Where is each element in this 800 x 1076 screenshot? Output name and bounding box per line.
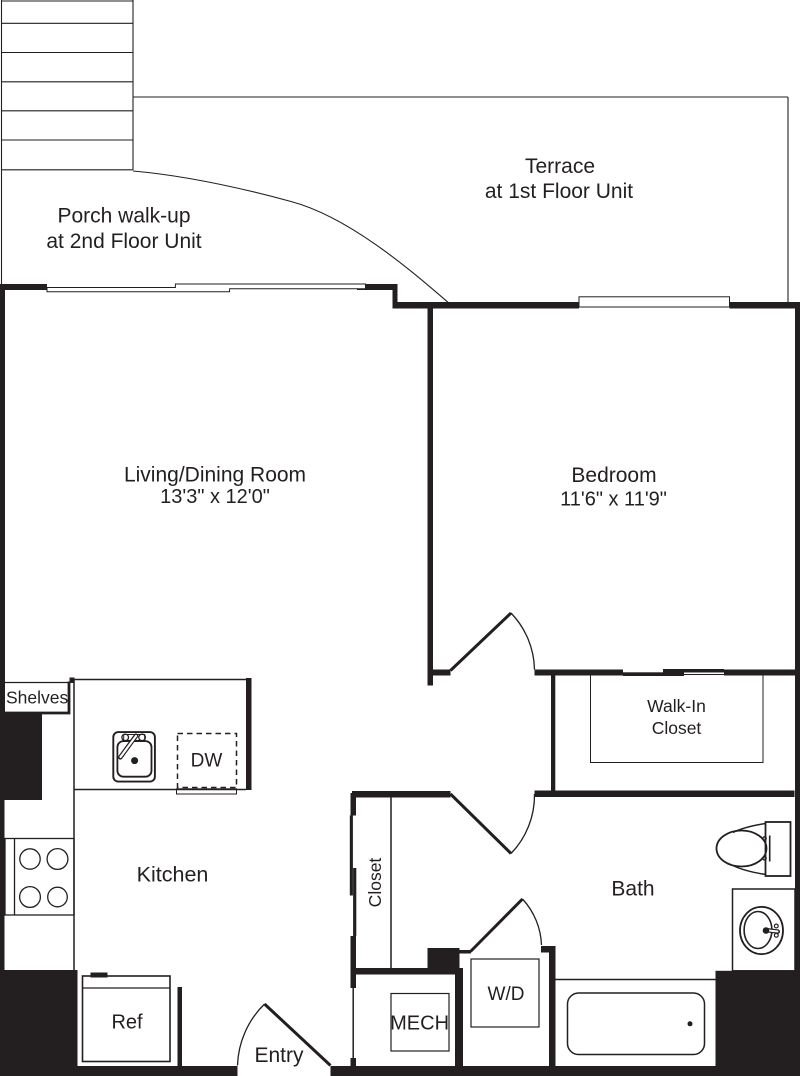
- svg-text:Shelves: Shelves: [6, 688, 69, 708]
- svg-text:Closet: Closet: [365, 858, 385, 908]
- svg-text:13'3" x 12'0": 13'3" x 12'0": [160, 486, 270, 508]
- svg-text:Entry: Entry: [254, 1044, 304, 1067]
- svg-text:11'6" x 11'9": 11'6" x 11'9": [560, 489, 667, 511]
- svg-text:Kitchen: Kitchen: [137, 863, 209, 887]
- svg-text:Terrace: Terrace: [525, 155, 595, 178]
- svg-text:DW: DW: [191, 751, 223, 772]
- svg-text:W/D: W/D: [488, 984, 525, 1005]
- svg-text:Walk-In: Walk-In: [647, 696, 706, 716]
- svg-text:at 1st Floor Unit: at 1st Floor Unit: [485, 180, 633, 203]
- svg-text:MECH: MECH: [390, 1013, 449, 1035]
- svg-text:Closet: Closet: [652, 718, 702, 738]
- svg-text:at 2nd Floor Unit: at 2nd Floor Unit: [46, 230, 201, 253]
- svg-text:Ref: Ref: [111, 1012, 143, 1034]
- svg-text:Bath: Bath: [611, 878, 654, 901]
- svg-text:Bedroom: Bedroom: [571, 464, 656, 487]
- svg-text:Living/Dining Room: Living/Dining Room: [124, 464, 306, 487]
- svg-text:Porch walk-up: Porch walk-up: [57, 205, 190, 228]
